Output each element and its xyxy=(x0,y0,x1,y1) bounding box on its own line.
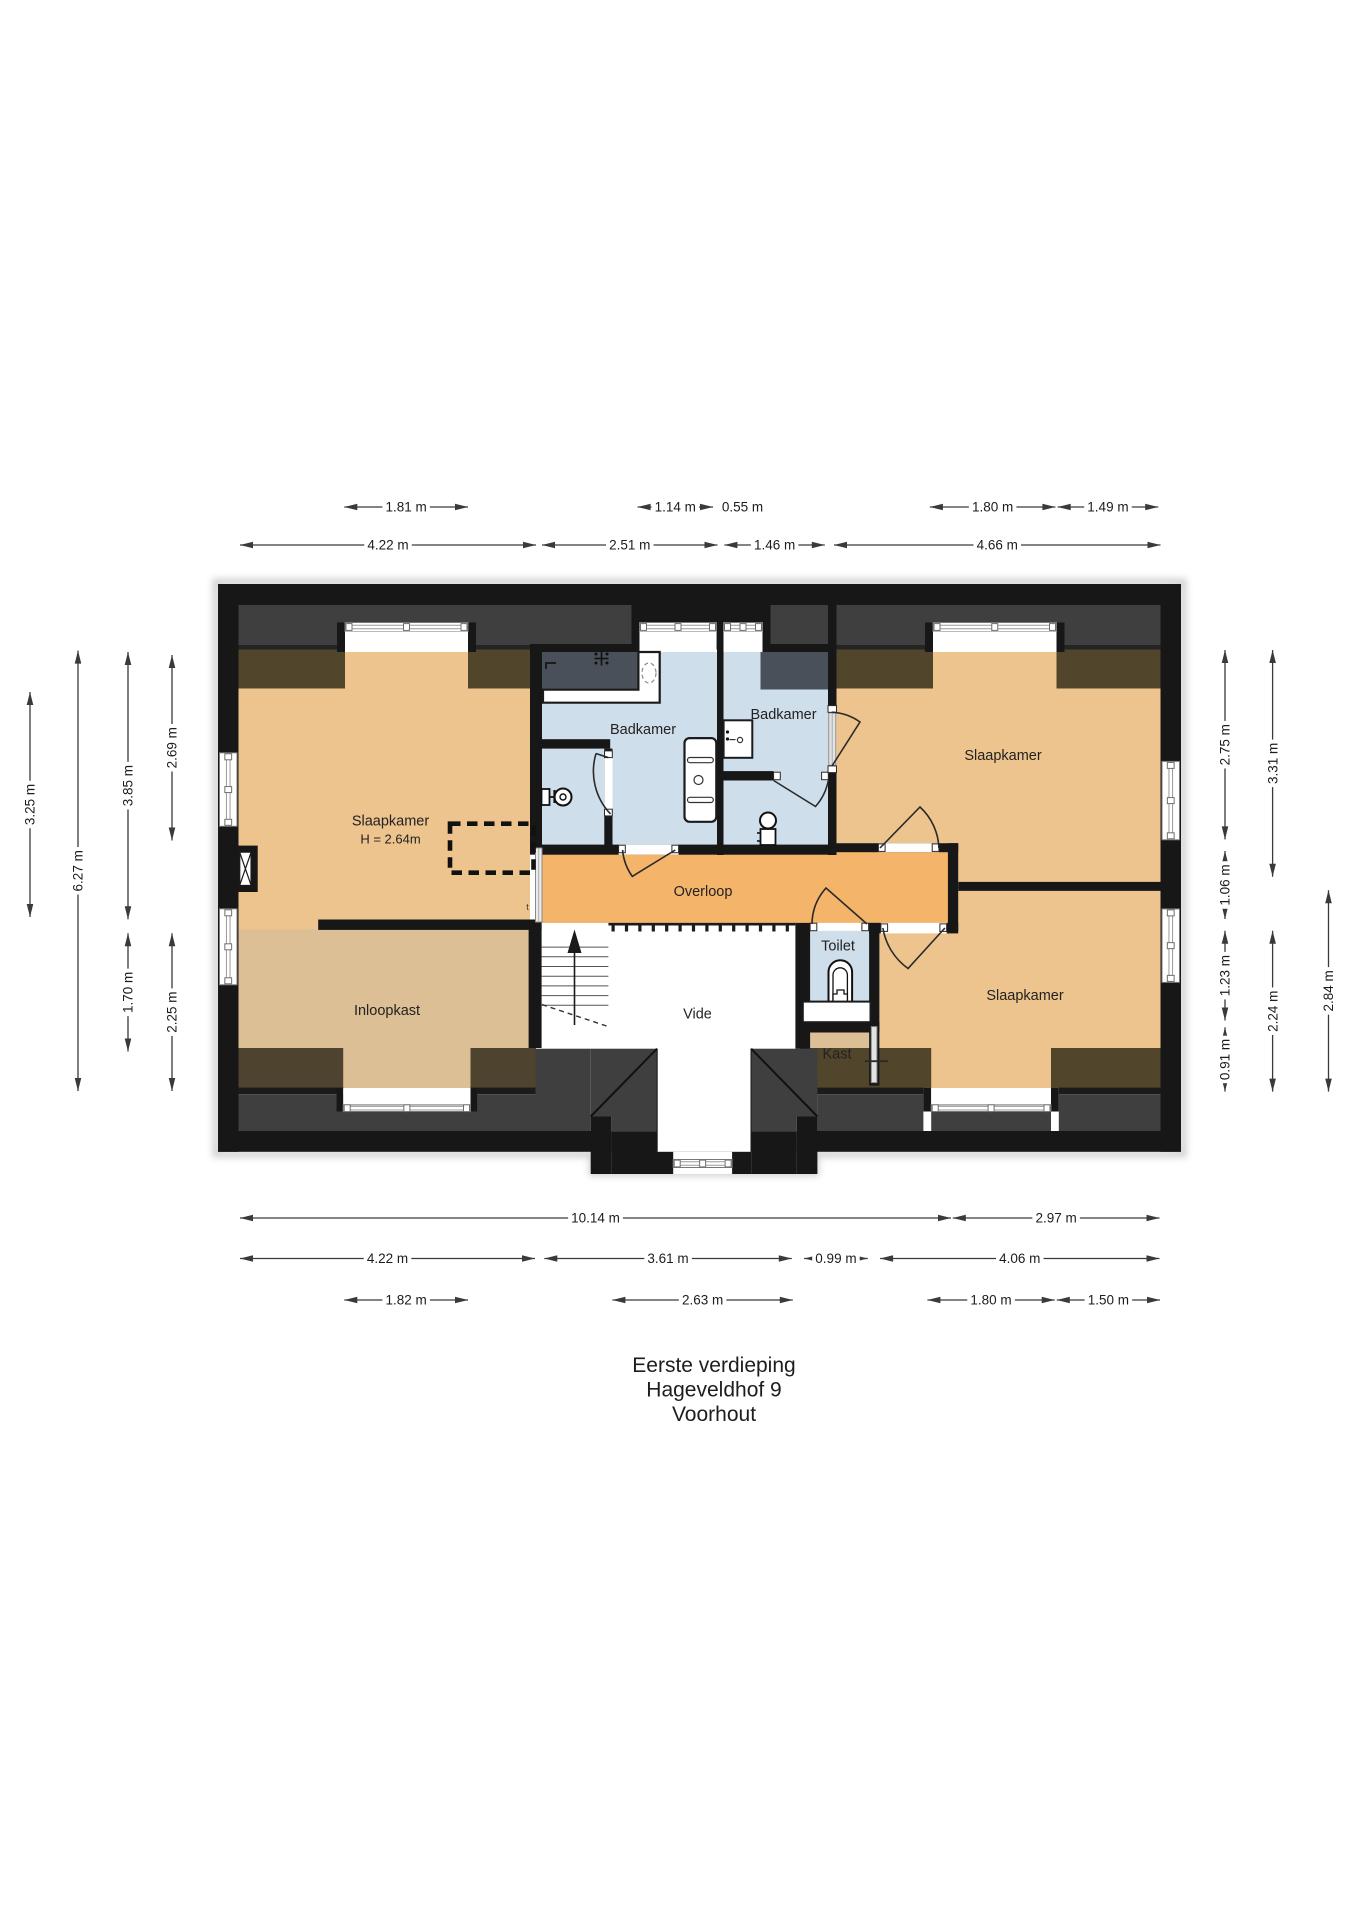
svg-text:10.14 m: 10.14 m xyxy=(571,1211,620,1226)
svg-text:Slaapkamer: Slaapkamer xyxy=(986,988,1064,1004)
svg-text:2.69 m: 2.69 m xyxy=(165,727,180,768)
svg-text:0.91 m: 0.91 m xyxy=(1218,1039,1233,1080)
svg-text:4.22 m: 4.22 m xyxy=(367,538,408,553)
svg-text:1.80 m: 1.80 m xyxy=(972,500,1013,515)
svg-text:Toilet: Toilet xyxy=(821,939,855,955)
svg-text:1.81 m: 1.81 m xyxy=(386,500,427,515)
svg-text:2.25 m: 2.25 m xyxy=(165,992,180,1033)
svg-text:1.14 m: 1.14 m xyxy=(655,500,696,515)
svg-text:4.66 m: 4.66 m xyxy=(977,538,1018,553)
svg-text:2.75 m: 2.75 m xyxy=(1218,724,1233,765)
svg-text:1.50 m: 1.50 m xyxy=(1088,1293,1129,1308)
svg-text:Inloopkast: Inloopkast xyxy=(354,1003,420,1019)
svg-text:4.22 m: 4.22 m xyxy=(367,1251,408,1266)
svg-text:2.51 m: 2.51 m xyxy=(609,538,650,553)
svg-text:3.85 m: 3.85 m xyxy=(121,765,136,806)
svg-text:1.49 m: 1.49 m xyxy=(1087,500,1128,515)
svg-text:Eerste verdieping: Eerste verdieping xyxy=(632,1354,795,1377)
svg-text:Vide: Vide xyxy=(683,1007,712,1023)
svg-text:6.27 m: 6.27 m xyxy=(71,850,86,891)
svg-text:3.25 m: 3.25 m xyxy=(23,784,38,825)
svg-text:Kast: Kast xyxy=(822,1047,851,1063)
svg-text:3.61 m: 3.61 m xyxy=(647,1251,688,1266)
svg-text:2.63 m: 2.63 m xyxy=(682,1293,723,1308)
svg-text:2.24 m: 2.24 m xyxy=(1265,991,1280,1032)
svg-text:Hageveldhof 9: Hageveldhof 9 xyxy=(646,1379,781,1402)
svg-text:Overloop: Overloop xyxy=(674,884,733,900)
svg-text:0.55 m: 0.55 m xyxy=(722,500,763,515)
svg-text:2.97 m: 2.97 m xyxy=(1036,1211,1077,1226)
svg-text:3.31 m: 3.31 m xyxy=(1265,743,1280,784)
svg-text:Slaapkamer: Slaapkamer xyxy=(964,748,1042,764)
svg-text:Voorhout: Voorhout xyxy=(672,1403,756,1426)
svg-text:Badkamer: Badkamer xyxy=(750,707,816,723)
svg-text:2.84 m: 2.84 m xyxy=(1321,970,1336,1011)
svg-text:4.06 m: 4.06 m xyxy=(999,1251,1040,1266)
svg-text:Badkamer: Badkamer xyxy=(610,722,676,738)
svg-text:0.99 m: 0.99 m xyxy=(815,1251,856,1266)
svg-text:H = 2.64m: H = 2.64m xyxy=(360,832,420,847)
svg-text:1.46 m: 1.46 m xyxy=(754,538,795,553)
svg-text:1.82 m: 1.82 m xyxy=(386,1293,427,1308)
svg-text:1.80 m: 1.80 m xyxy=(970,1293,1011,1308)
svg-text:Slaapkamer: Slaapkamer xyxy=(352,814,430,830)
svg-text:1.23 m: 1.23 m xyxy=(1218,955,1233,996)
svg-text:1.06 m: 1.06 m xyxy=(1218,864,1233,905)
svg-text:1.70 m: 1.70 m xyxy=(121,972,136,1013)
